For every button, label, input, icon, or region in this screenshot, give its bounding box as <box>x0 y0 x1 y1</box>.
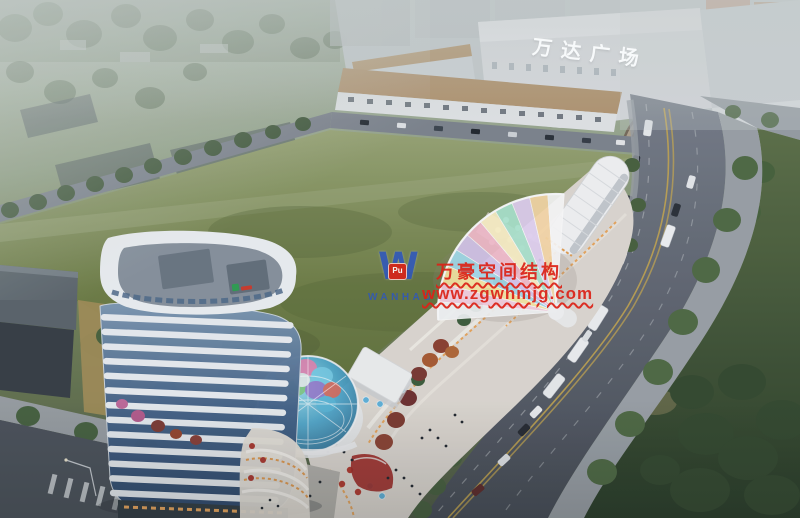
watermark-logo-badge: Pu <box>388 263 407 280</box>
watermark-brand-text: 万豪空间结构 <box>436 258 562 284</box>
watermark-url-text: www.zgwhmjg.com <box>422 284 593 304</box>
aerial-rendering: 万达广场 W Pu WANHAO 万豪空间结构 www.zgwhmjg.com <box>0 0 800 518</box>
watermark: W Pu WANHAO 万豪空间结构 www.zgwhmjg.com <box>366 248 606 318</box>
